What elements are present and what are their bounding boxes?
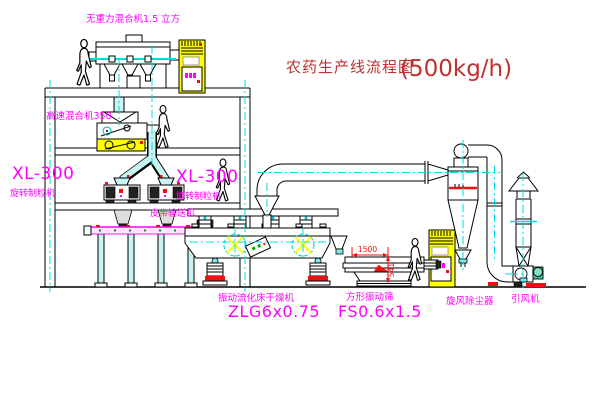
spring-hangers [199, 216, 312, 228]
worker-figure-1 [77, 39, 92, 85]
label-cyclone: 旋风除尘器 [446, 295, 494, 307]
label-granulator-right-name: 旋转制粒机 [176, 190, 221, 202]
diagram-title: 农药生产线流程图 (500kg/h) [286, 56, 512, 82]
label-granulator-left-name: 旋转制粒机 [10, 187, 55, 199]
title-text: 农药生产线流程图 [286, 58, 414, 76]
control-cabinet-ground [429, 230, 455, 287]
process-flow-diagram: 1500 541 [0, 0, 600, 403]
exhaust-stack [509, 172, 538, 266]
gravity-mixer [88, 35, 179, 88]
label-screen-model: FS0.6x1.5 [338, 302, 422, 321]
label-granulator-right-model: XL-300 [176, 167, 238, 187]
title-capacity: (500kg/h) [400, 56, 512, 82]
label-belt-conveyor: 皮带输送机 [150, 207, 195, 219]
label-gravity-mixer: 无重力混合机1.5 立方 [86, 13, 180, 25]
label-high-speed-mixer: 高速混合机350 [46, 110, 112, 122]
dryer-spring-supports [203, 258, 330, 285]
label-granulator-left-model: XL-300 [12, 164, 74, 184]
control-cabinet-top [179, 40, 205, 93]
exhaust-duct [255, 161, 448, 228]
cyclone-separator [448, 144, 520, 286]
draft-fan [513, 266, 546, 287]
label-dryer-model: ZLG6x0.75 [228, 302, 320, 321]
fluid-bed-dryer [185, 209, 338, 285]
label-draft-fan: 引风机 [511, 293, 540, 305]
granulator-left [104, 182, 140, 203]
diagram-canvas: 1500 541 [0, 0, 600, 403]
dim-screen-length: 1500 [358, 245, 377, 254]
dim-screen-height: 541 [387, 263, 396, 278]
